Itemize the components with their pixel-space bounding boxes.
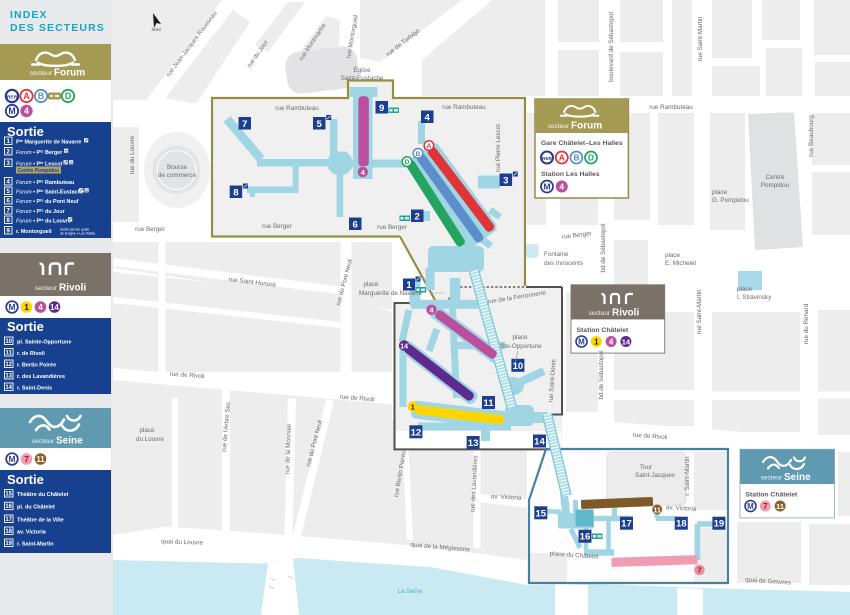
svg-text:9: 9	[379, 103, 384, 114]
svg-text:rue du Renard: rue du Renard	[803, 303, 810, 344]
svg-text:7: 7	[6, 208, 10, 215]
svg-text:av. Victoria: av. Victoria	[17, 529, 47, 535]
svg-text:r. de Rivoli: r. de Rivoli	[17, 350, 45, 356]
svg-text:RER: RER	[542, 156, 552, 161]
svg-text:11: 11	[483, 398, 494, 409]
svg-text:11: 11	[653, 507, 661, 514]
svg-text:Rivoli: Rivoli	[59, 283, 86, 294]
svg-text:14: 14	[622, 337, 631, 346]
svg-text:18: 18	[5, 529, 12, 535]
svg-text:14: 14	[534, 437, 545, 448]
svg-text:12: 12	[5, 362, 12, 368]
svg-text:rue Berger: rue Berger	[377, 224, 407, 231]
svg-text:7: 7	[763, 502, 768, 511]
svg-text:r. Saint-Martin: r. Saint-Martin	[684, 456, 691, 496]
svg-text:rue du Louvre: rue du Louvre	[129, 135, 136, 174]
svg-text:1: 1	[6, 138, 10, 145]
svg-text:17: 17	[621, 519, 632, 530]
svg-text:des Innocents: des Innocents	[544, 260, 583, 267]
svg-text:4: 4	[559, 182, 564, 192]
svg-text:B: B	[573, 153, 579, 163]
svg-text:pl. Sainte-Opportune: pl. Sainte-Opportune	[17, 339, 71, 345]
svg-text:bd de Sébastopol: bd de Sébastopol	[598, 350, 605, 399]
svg-text:8: 8	[6, 217, 10, 224]
svg-text:4: 4	[425, 112, 431, 123]
svg-text:G. Pompidou: G. Pompidou	[712, 197, 749, 204]
svg-text:place: place	[363, 281, 379, 288]
svg-text:1: 1	[411, 402, 415, 411]
svg-text:E. Michelet: E. Michelet	[665, 260, 696, 267]
svg-text:rue Rambuteau: rue Rambuteau	[442, 104, 486, 111]
svg-text:A: A	[426, 143, 431, 150]
svg-text:rue Berger: rue Berger	[135, 226, 165, 233]
svg-text:Rivoli: Rivoli	[612, 308, 639, 319]
svg-text:1: 1	[24, 302, 29, 312]
svg-text:Centre Pompidou: Centre Pompidou	[18, 168, 60, 174]
svg-text:Pompidou: Pompidou	[761, 182, 790, 189]
svg-text:Forum • Pte du Jour: Forum • Pte du Jour	[16, 209, 66, 215]
svg-text:Seine: Seine	[784, 472, 811, 483]
svg-text:A: A	[23, 91, 30, 101]
svg-text:secteur: secteur	[35, 285, 58, 292]
svg-text:Forum • Pte du Pont Neuf: Forum • Pte du Pont Neuf	[16, 199, 79, 205]
svg-text:Église: Église	[353, 65, 371, 74]
svg-text:1: 1	[594, 337, 599, 346]
svg-text:bd de Sébastopol: bd de Sébastopol	[600, 223, 607, 272]
svg-text:secteur: secteur	[761, 475, 783, 482]
svg-text:de commerce: de commerce	[158, 172, 197, 179]
svg-text:quai du Louvre: quai du Louvre	[161, 538, 203, 546]
svg-text:secteur: secteur	[32, 438, 55, 445]
svg-text:r. Bertin Poirée: r. Bertin Poirée	[17, 362, 56, 368]
svg-text:14: 14	[50, 303, 59, 312]
svg-text:16: 16	[5, 504, 12, 510]
svg-text:6: 6	[6, 198, 10, 205]
svg-text:M: M	[543, 182, 550, 192]
svg-text:r. Montorgueil: r. Montorgueil	[16, 229, 52, 235]
svg-text:Fontaine: Fontaine	[544, 251, 569, 258]
svg-text:7: 7	[24, 454, 29, 464]
svg-text:D: D	[405, 159, 410, 166]
svg-text:5: 5	[6, 188, 10, 195]
svg-text:rue Rambuteau: rue Rambuteau	[649, 104, 693, 111]
svg-text:boulevard de Sébastopol: boulevard de Sébastopol	[608, 12, 615, 82]
svg-text:rue Saint-Martin: rue Saint-Martin	[696, 289, 703, 334]
svg-text:13: 13	[5, 373, 12, 379]
svg-text:Station Les Halles: Station Les Halles	[541, 171, 600, 178]
svg-text:14: 14	[5, 385, 12, 391]
svg-text:place: place	[737, 286, 753, 293]
svg-text:rue Beaubourg: rue Beaubourg	[808, 115, 815, 157]
svg-text:M: M	[8, 106, 15, 116]
svg-text:I. Stravinsky: I. Stravinsky	[737, 294, 772, 301]
svg-text:D: D	[65, 91, 71, 101]
svg-text:secteur: secteur	[30, 70, 53, 77]
svg-text:M: M	[9, 302, 16, 312]
svg-text:Saint-Eustache: Saint-Eustache	[341, 75, 384, 82]
svg-text:10: 10	[513, 361, 524, 372]
svg-text:4: 4	[38, 302, 43, 312]
svg-text:Ste-Opportune: Ste-Opportune	[500, 343, 542, 350]
svg-text:rue Rambuteau: rue Rambuteau	[275, 105, 319, 112]
svg-text:Marguerite de Navarre: Marguerite de Navarre	[359, 290, 422, 297]
svg-text:M: M	[747, 502, 754, 511]
svg-text:M: M	[9, 454, 16, 464]
svg-text:7: 7	[697, 566, 701, 575]
svg-text:Forum • Pte du Louvre: Forum • Pte du Louvre	[16, 218, 71, 224]
svg-text:8: 8	[233, 187, 239, 198]
svg-text:secteur: secteur	[548, 123, 570, 130]
svg-text:15: 15	[535, 508, 546, 519]
svg-text:M: M	[578, 337, 585, 346]
svg-text:4: 4	[609, 337, 614, 346]
svg-text:14: 14	[400, 343, 408, 350]
svg-text:13: 13	[468, 438, 479, 449]
svg-text:pl. du Châtelet: pl. du Châtelet	[17, 505, 55, 511]
svg-text:3: 3	[6, 160, 10, 167]
svg-text:secteur: secteur	[589, 310, 611, 317]
svg-text:Station Châtelet: Station Châtelet	[577, 327, 629, 334]
svg-text:A: A	[559, 153, 565, 163]
svg-text:16: 16	[580, 532, 591, 543]
svg-text:9: 9	[6, 228, 10, 235]
svg-text:7: 7	[242, 119, 247, 130]
svg-text:19: 19	[714, 519, 725, 530]
svg-text:Gare Châtelet–Les Halles: Gare Châtelet–Les Halles	[541, 140, 623, 147]
svg-text:Saint-Jacques: Saint-Jacques	[635, 472, 675, 479]
svg-text:5: 5	[317, 119, 323, 130]
svg-text:place: place	[665, 252, 681, 259]
svg-text:Théâtre de la Ville: Théâtre de la Ville	[17, 517, 64, 523]
svg-text:RER: RER	[7, 94, 18, 100]
svg-text:place: place	[139, 427, 155, 434]
svg-text:18: 18	[676, 519, 687, 530]
svg-text:Station Châtelet: Station Châtelet	[746, 492, 798, 499]
svg-text:17: 17	[5, 517, 12, 523]
svg-text:r. des Lavandières: r. des Lavandières	[17, 373, 65, 379]
svg-text:r. Saint-Denis: r. Saint-Denis	[17, 385, 52, 391]
svg-text:rue Saint-Martin: rue Saint-Martin	[697, 16, 704, 61]
svg-text:Pte Marguerite de Navarre: Pte Marguerite de Navarre	[16, 139, 81, 145]
svg-text:19: 19	[5, 541, 12, 547]
svg-text:La Seine: La Seine	[398, 588, 423, 595]
svg-text:15: 15	[5, 492, 12, 498]
svg-text:rue Berger: rue Berger	[262, 223, 292, 230]
svg-text:rue Pierre Lescot: rue Pierre Lescot	[495, 124, 502, 172]
svg-text:Forum • Pte Lescot: Forum • Pte Lescot	[16, 161, 63, 167]
svg-text:place: place	[712, 189, 728, 196]
svg-text:4: 4	[6, 179, 10, 186]
svg-text:6: 6	[353, 219, 358, 230]
svg-text:Forum • Pte Rambuteau: Forum • Pte Rambuteau	[16, 180, 74, 186]
svg-text:Théâtre du Châtelet: Théâtre du Châtelet	[17, 492, 69, 498]
svg-text:3: 3	[503, 175, 508, 186]
svg-text:Forum • Pte Berger: Forum • Pte Berger	[16, 150, 63, 156]
svg-text:Tour: Tour	[640, 464, 652, 471]
svg-text:D: D	[588, 153, 594, 163]
svg-text:de la ligne ● Les Halles: de la ligne ● Les Halles	[60, 232, 96, 236]
svg-text:12: 12	[411, 427, 422, 438]
svg-text:Forum • Pte Saint-Eustache: Forum • Pte Saint-Eustache	[16, 189, 84, 195]
svg-text:11: 11	[6, 350, 13, 356]
svg-text:4: 4	[24, 106, 29, 116]
svg-text:2: 2	[6, 149, 10, 156]
svg-text:Nord: Nord	[151, 27, 161, 32]
svg-text:2: 2	[415, 211, 420, 222]
svg-text:Bourse: Bourse	[167, 164, 187, 171]
svg-text:Centre: Centre	[766, 174, 785, 181]
svg-text:Forum: Forum	[571, 121, 602, 132]
svg-text:11: 11	[36, 455, 45, 464]
svg-text:11: 11	[776, 502, 784, 511]
svg-text:place: place	[512, 334, 528, 341]
svg-text:Seine: Seine	[56, 436, 83, 447]
svg-text:r. Saint-Martin: r. Saint-Martin	[17, 541, 54, 547]
svg-text:Forum: Forum	[54, 68, 85, 79]
svg-text:B: B	[416, 151, 421, 158]
svg-text:10: 10	[5, 339, 12, 345]
svg-text:B: B	[38, 91, 44, 101]
svg-text:du Louvre: du Louvre	[136, 436, 165, 443]
